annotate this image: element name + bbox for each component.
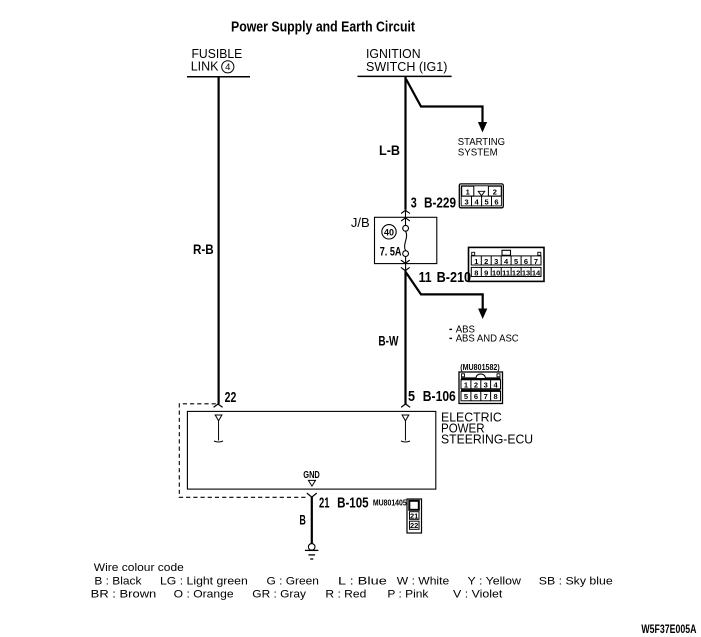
svg-text:6: 6 (524, 257, 528, 266)
svg-text:13: 13 (522, 268, 530, 277)
svg-text:7. 5A: 7. 5A (380, 244, 402, 258)
svg-text:MU801405: MU801405 (373, 499, 407, 508)
svg-text:B: B (299, 511, 306, 527)
svg-text:BR : Brown: BR : Brown (91, 589, 157, 601)
svg-text:Wire colour code: Wire colour code (94, 562, 184, 574)
svg-text:L : Blue: L : Blue (338, 575, 387, 587)
svg-text:W5F37E005A: W5F37E005A (641, 622, 696, 636)
svg-text:LINK: LINK (191, 59, 219, 74)
svg-text:G : Green: G : Green (267, 575, 319, 587)
svg-text:2: 2 (474, 380, 478, 389)
svg-text:21: 21 (319, 495, 330, 511)
svg-text:1: 1 (466, 188, 470, 197)
svg-text:22: 22 (225, 390, 237, 406)
svg-text:J/B: J/B (351, 215, 370, 230)
svg-text:B-229: B-229 (424, 196, 456, 212)
svg-text:V : Violet: V : Violet (453, 589, 502, 601)
svg-text:8: 8 (494, 392, 498, 401)
svg-text:7: 7 (484, 392, 488, 401)
svg-text:B-W: B-W (378, 332, 399, 348)
svg-text:O : Orange: O : Orange (174, 589, 234, 601)
svg-text:2: 2 (484, 257, 488, 266)
svg-text:Power Supply and Earth Circuit: Power Supply and Earth Circuit (231, 19, 415, 36)
svg-text:R : Red: R : Red (325, 589, 366, 601)
svg-text:22: 22 (410, 521, 418, 530)
svg-text:B-106: B-106 (423, 389, 456, 405)
svg-text:R-B: R-B (193, 241, 214, 257)
svg-text:GND: GND (303, 470, 320, 481)
svg-text:SB : Sky blue: SB : Sky blue (539, 575, 613, 587)
svg-text:GR : Gray: GR : Gray (252, 589, 306, 601)
svg-text:6: 6 (474, 392, 478, 401)
svg-text:3: 3 (484, 380, 488, 389)
svg-text:5: 5 (464, 392, 468, 401)
svg-text:10: 10 (492, 268, 500, 277)
svg-text:W : White: W : White (397, 575, 449, 587)
svg-text:4: 4 (225, 62, 230, 73)
svg-text:5: 5 (408, 389, 415, 405)
svg-text:11: 11 (502, 268, 510, 277)
svg-text:LG : Light green: LG : Light green (160, 575, 248, 587)
svg-text:L-B: L-B (379, 142, 400, 158)
svg-text:11: 11 (419, 270, 432, 286)
svg-text:P : Pink: P : Pink (387, 589, 429, 601)
svg-text:6: 6 (494, 198, 498, 207)
svg-text:3: 3 (465, 198, 469, 207)
svg-text:5: 5 (485, 198, 489, 207)
svg-text:ABS AND ASC: ABS AND ASC (456, 333, 519, 344)
svg-text:3: 3 (411, 196, 417, 212)
svg-text:SYSTEM: SYSTEM (458, 147, 498, 158)
svg-text:8: 8 (474, 268, 478, 277)
svg-text:STEERING-ECU: STEERING-ECU (441, 432, 533, 447)
svg-text:2: 2 (493, 188, 497, 197)
svg-text:B-105: B-105 (337, 495, 369, 511)
svg-text:1: 1 (474, 257, 478, 266)
svg-text:B : Black: B : Black (94, 575, 142, 587)
svg-text:40: 40 (384, 227, 394, 238)
svg-text:SWITCH (IG1): SWITCH (IG1) (366, 59, 447, 74)
svg-text:21: 21 (410, 511, 418, 520)
svg-text:1: 1 (464, 380, 468, 389)
svg-text:B-210: B-210 (437, 270, 472, 286)
svg-text:Y : Yellow: Y : Yellow (468, 575, 521, 587)
svg-text:3: 3 (494, 257, 498, 266)
svg-text:5: 5 (514, 257, 518, 266)
svg-text:9: 9 (484, 268, 488, 277)
svg-text:(MU801582): (MU801582) (460, 363, 500, 372)
svg-text:12: 12 (512, 268, 520, 277)
svg-text:14: 14 (532, 268, 541, 277)
svg-text:7: 7 (534, 257, 538, 266)
